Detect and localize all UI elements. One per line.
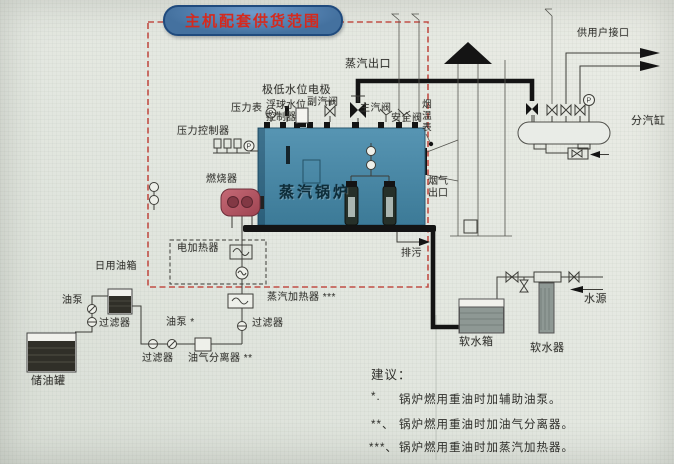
- boiler-supply-diagram: P P: [0, 0, 674, 464]
- vent-pipes: [392, 14, 419, 122]
- svg-text:P: P: [247, 144, 252, 151]
- user-supply-pipes: [545, 9, 660, 104]
- label-float-controller: 浮球水位控制器: [266, 100, 312, 123]
- pressure-controller-icon: P: [213, 139, 258, 153]
- boiler-skid: [243, 225, 436, 232]
- diagram-drawing: P P: [0, 0, 674, 464]
- label-daily-oil-tank: 日用油箱: [95, 261, 137, 273]
- label-oil-pump: 油泵: [62, 295, 83, 307]
- suggestion-marker: ***、: [369, 439, 398, 455]
- label-low-water-electrode: 极低水位电极: [262, 84, 331, 97]
- label-filter-bottom: 过滤器: [142, 353, 174, 365]
- suggestion-text: 锅炉燃用重油时加蒸汽加热器。: [399, 439, 574, 455]
- feed-pump-right: [383, 181, 396, 225]
- steam-cylinder-vessel: P: [518, 95, 610, 150]
- label-pressure-gauge: 压力表: [231, 103, 263, 115]
- label-steam-cylinder: 分汽缸: [631, 115, 666, 128]
- label-water-source: 水源: [584, 293, 607, 306]
- label-boiler: 蒸汽锅炉: [279, 184, 351, 201]
- label-main-steam-valve: 主汽阀: [360, 103, 392, 115]
- label-flue-temp-gauge: 烟温表: [419, 99, 430, 147]
- label-filter-riser: 过滤器: [252, 318, 284, 330]
- suggestion-text: 锅炉燃用重油时加油气分离器。: [399, 416, 574, 432]
- label-blowdown: 排污: [401, 248, 422, 260]
- suggestion-marker: **、: [371, 416, 394, 432]
- label-soft-water-tank: 软水箱: [459, 336, 494, 349]
- label-electric-heater: 电加热器: [177, 243, 219, 255]
- label-oil-pump-aux: 油泵 *: [166, 317, 195, 329]
- label-steam-heater: 蒸汽加热器 ***: [267, 292, 336, 304]
- label-pressure-controller: 压力控制器: [177, 126, 230, 138]
- svg-text:P: P: [587, 98, 592, 105]
- oil-gauge-icons: [150, 183, 159, 211]
- burner-body: [221, 189, 264, 216]
- diagram-title: 主机配套供货范围: [163, 5, 343, 36]
- filter-icon-suction: [88, 318, 97, 327]
- label-steam-outlet: 蒸汽出口: [345, 58, 391, 71]
- aux-oil-pump-icon: [168, 340, 177, 349]
- label-burner: 燃烧器: [206, 174, 238, 186]
- label-flue-outlet: 烟气出口: [428, 176, 452, 199]
- daily-oil-tank: [108, 289, 132, 314]
- label-oil-gas-separator: 油气分离器 **: [188, 353, 253, 365]
- boiler-body: [258, 128, 425, 225]
- label-storage-tank: 储油罐: [31, 375, 66, 388]
- label-user-supply: 供用户接口: [577, 28, 630, 40]
- water-softener-column: [534, 272, 561, 333]
- oil-gas-separator-box: [195, 338, 211, 351]
- label-water-softener: 软水器: [530, 342, 565, 355]
- soft-water-tank: [459, 299, 504, 333]
- suggestion-marker: *.: [371, 391, 381, 403]
- oil-pump-icon: [88, 305, 97, 314]
- water-source-arrow: [570, 286, 603, 293]
- label-filter-suction: 过滤器: [99, 318, 131, 330]
- blowdown-arrow: [397, 232, 430, 246]
- label-aux-steam-valve: 副汽阀: [307, 97, 339, 109]
- chimney: [444, 42, 512, 236]
- filter-icon-bottom: [149, 340, 158, 349]
- suggestions-heading: 建议：: [371, 364, 412, 383]
- suggestion-text: 锅炉燃用重油时加辅助油泵。: [399, 391, 562, 407]
- storage-oil-tank: [27, 333, 76, 372]
- label-safety-valve: 安全阀: [391, 113, 423, 125]
- filter-icon-riser: [238, 322, 247, 331]
- steam-heater-box: [228, 294, 253, 308]
